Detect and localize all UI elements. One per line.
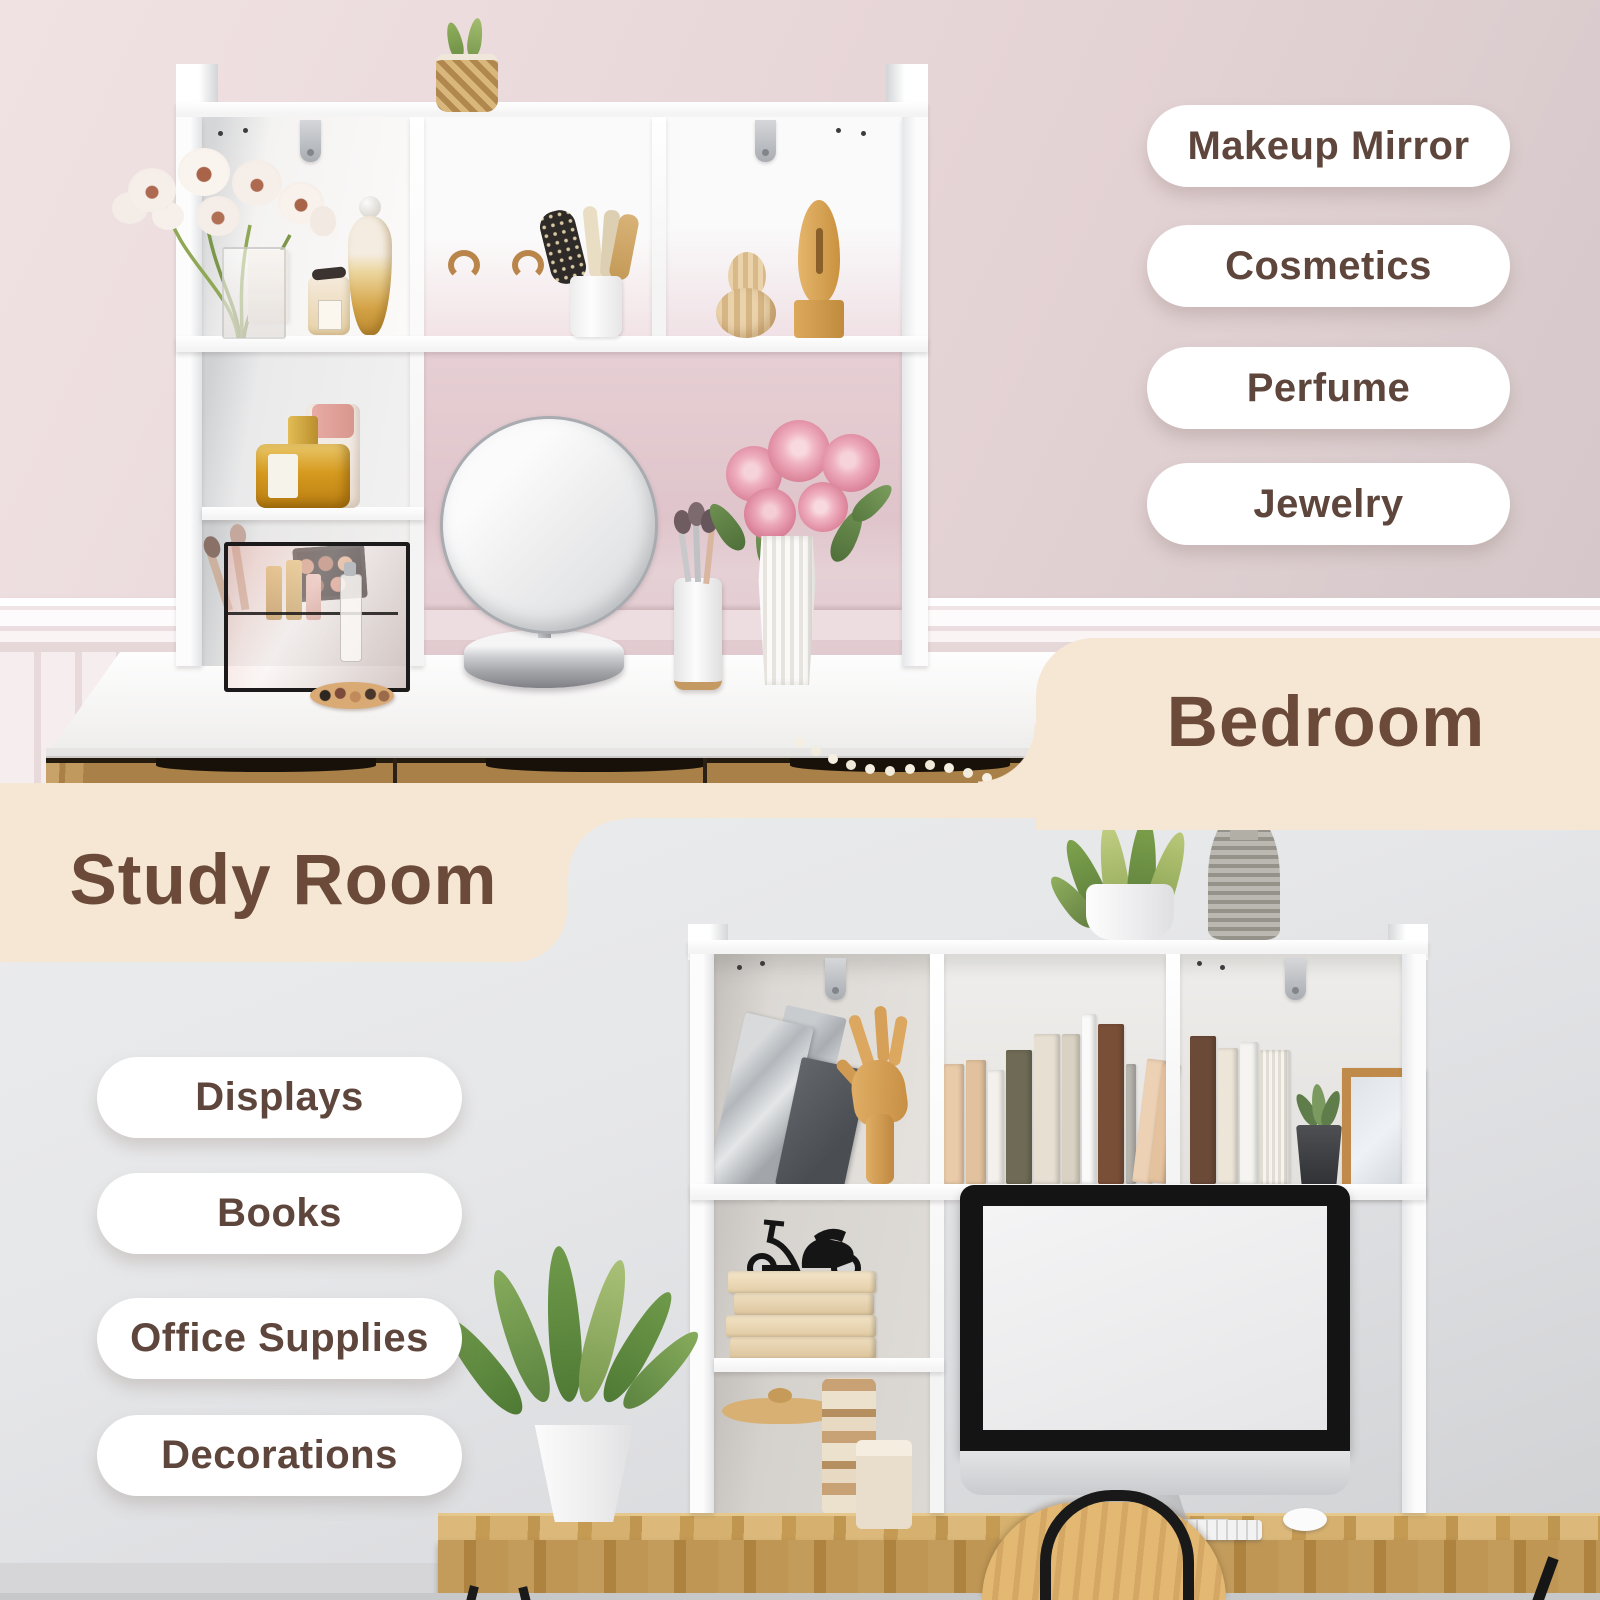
screw-dot: [1197, 961, 1202, 966]
organizer-divider-b: [652, 117, 666, 336]
orchid-bud: [310, 206, 336, 236]
drawer-divider: [703, 758, 707, 783]
book-spine: [1218, 1048, 1238, 1184]
perfume-bow: [312, 266, 347, 280]
organizer-top-board: [176, 102, 928, 117]
rose-bloom: [744, 488, 796, 540]
drawer-divider: [393, 758, 397, 783]
label-pill-office-supplies: Office Supplies: [97, 1298, 462, 1379]
oval-palette-on-table: [310, 682, 394, 709]
drawer-handle-cutout: [156, 758, 376, 772]
mouse: [1283, 1508, 1327, 1531]
glass-vase: [222, 247, 286, 339]
product-infographic: Bedroom Study Room Makeup Mirror Cosmeti…: [0, 0, 1600, 1600]
wicker-basket: [452, 262, 540, 337]
white-utensil-cup: [570, 276, 622, 337]
brush-holder-cup: [674, 578, 722, 690]
pearl-necklace: [795, 737, 805, 747]
rose-bloom: [768, 420, 830, 482]
rounded-corner-notch: [978, 725, 1036, 783]
orchid-flower: [232, 160, 282, 206]
organizer-right-panel: [1402, 954, 1426, 1513]
label-pill-decorations: Decorations: [97, 1415, 462, 1496]
drawer-handle-cutout: [486, 758, 706, 772]
rattan-basket-knob: [768, 1388, 792, 1403]
bedroom-title: Bedroom: [1167, 687, 1486, 758]
stacked-book: [728, 1271, 876, 1293]
wall-bracket: [1285, 958, 1306, 1000]
makeup-mirror-glass: [440, 416, 658, 634]
label-pill-jewelry: Jewelry: [1147, 463, 1510, 545]
screw-dot: [836, 128, 841, 133]
study-title: Study Room: [69, 845, 497, 916]
book-spine: [988, 1070, 1004, 1184]
study-label-panel: Study Room: [0, 783, 567, 962]
book-spine: [1190, 1036, 1216, 1184]
screw-dot: [218, 131, 223, 136]
perfume-bottle-bow: [308, 276, 350, 335]
monitor-screen: [983, 1206, 1327, 1430]
cubby-back-right-top: [666, 117, 902, 336]
book-spine: [944, 1064, 964, 1184]
screw-dot: [737, 965, 742, 970]
book-spine: [1034, 1034, 1060, 1184]
white-plant-pot: [1086, 884, 1174, 940]
book-spine: [966, 1060, 986, 1184]
organizer-shelf-2: [202, 507, 424, 520]
book-spine: [1062, 1034, 1080, 1184]
bedroom-label-panel: Bedroom: [1036, 638, 1600, 830]
screw-dot: [760, 961, 765, 966]
abstract-wood-figurine-base: [794, 300, 844, 338]
amber-perfume-label: [268, 454, 298, 498]
screw-dot: [861, 131, 866, 136]
acrylic-organizer-box: [224, 542, 410, 692]
stacked-book: [734, 1293, 874, 1315]
makeup-mirror-base: [464, 630, 624, 688]
dropper-bottle: [340, 574, 362, 662]
gourd-vase-bottom: [716, 288, 776, 338]
organizer-shelf-2: [714, 1358, 944, 1372]
organizer-left-ear: [176, 64, 218, 104]
organizer-right-panel: [902, 117, 928, 666]
amber-perfume-bottle: [256, 444, 350, 508]
organizer-divider-b: [1166, 954, 1180, 1184]
rose-vase-ribbed: [758, 536, 816, 685]
orchid-flower: [178, 148, 230, 196]
label-pill-perfume: Perfume: [1147, 347, 1510, 429]
label-pill-cosmetics: Cosmetics: [1147, 225, 1510, 307]
rattan-basket: [726, 1410, 834, 1513]
amber-perfume-cap: [288, 416, 318, 447]
organizer-right-ear: [886, 64, 928, 104]
book-spine: [1082, 1014, 1096, 1184]
label-pill-makeup-mirror: Makeup Mirror: [1147, 105, 1510, 187]
orchid-flower: [128, 168, 176, 212]
book-pages-out: [1260, 1050, 1290, 1184]
woven-plant-pot: [436, 54, 498, 112]
organizer-left-panel: [690, 954, 714, 1513]
organizer-divider-line: [228, 612, 398, 615]
book-spine: [1240, 1042, 1258, 1184]
rose-bloom: [798, 482, 848, 532]
perfume-label: [318, 300, 342, 330]
basket-handle: [512, 250, 544, 280]
label-pill-books: Books: [97, 1173, 462, 1254]
wall-bracket: [825, 958, 846, 1000]
organizer-divider-a: [410, 117, 424, 666]
floor-strip: [0, 1593, 1600, 1600]
screw-dot: [243, 128, 248, 133]
dropper-cap: [344, 562, 356, 576]
wooden-hand-wrist: [866, 1114, 894, 1184]
cream-jar: [856, 1440, 912, 1529]
orchid-flower: [196, 196, 240, 236]
organizer-divider-a: [930, 954, 944, 1513]
book-spine: [1006, 1050, 1032, 1184]
basket-handle: [448, 250, 480, 280]
stacked-book: [730, 1337, 876, 1359]
stacked-book: [726, 1315, 876, 1337]
succulent-pot-black: [1296, 1125, 1342, 1184]
screw-dot: [1220, 965, 1225, 970]
book-spine: [1098, 1024, 1124, 1184]
rounded-corner-notch: [567, 818, 625, 876]
figurine-slot: [816, 228, 823, 274]
perfume-cap-ball: [359, 196, 381, 218]
organizer-top-board: [688, 940, 1428, 954]
drawer-handle-cutout: [790, 758, 1010, 772]
label-pill-displays: Displays: [97, 1057, 462, 1138]
monitor-chin: [960, 1451, 1350, 1495]
pink-bottle-cap: [312, 404, 354, 438]
wall-bracket: [755, 120, 776, 162]
